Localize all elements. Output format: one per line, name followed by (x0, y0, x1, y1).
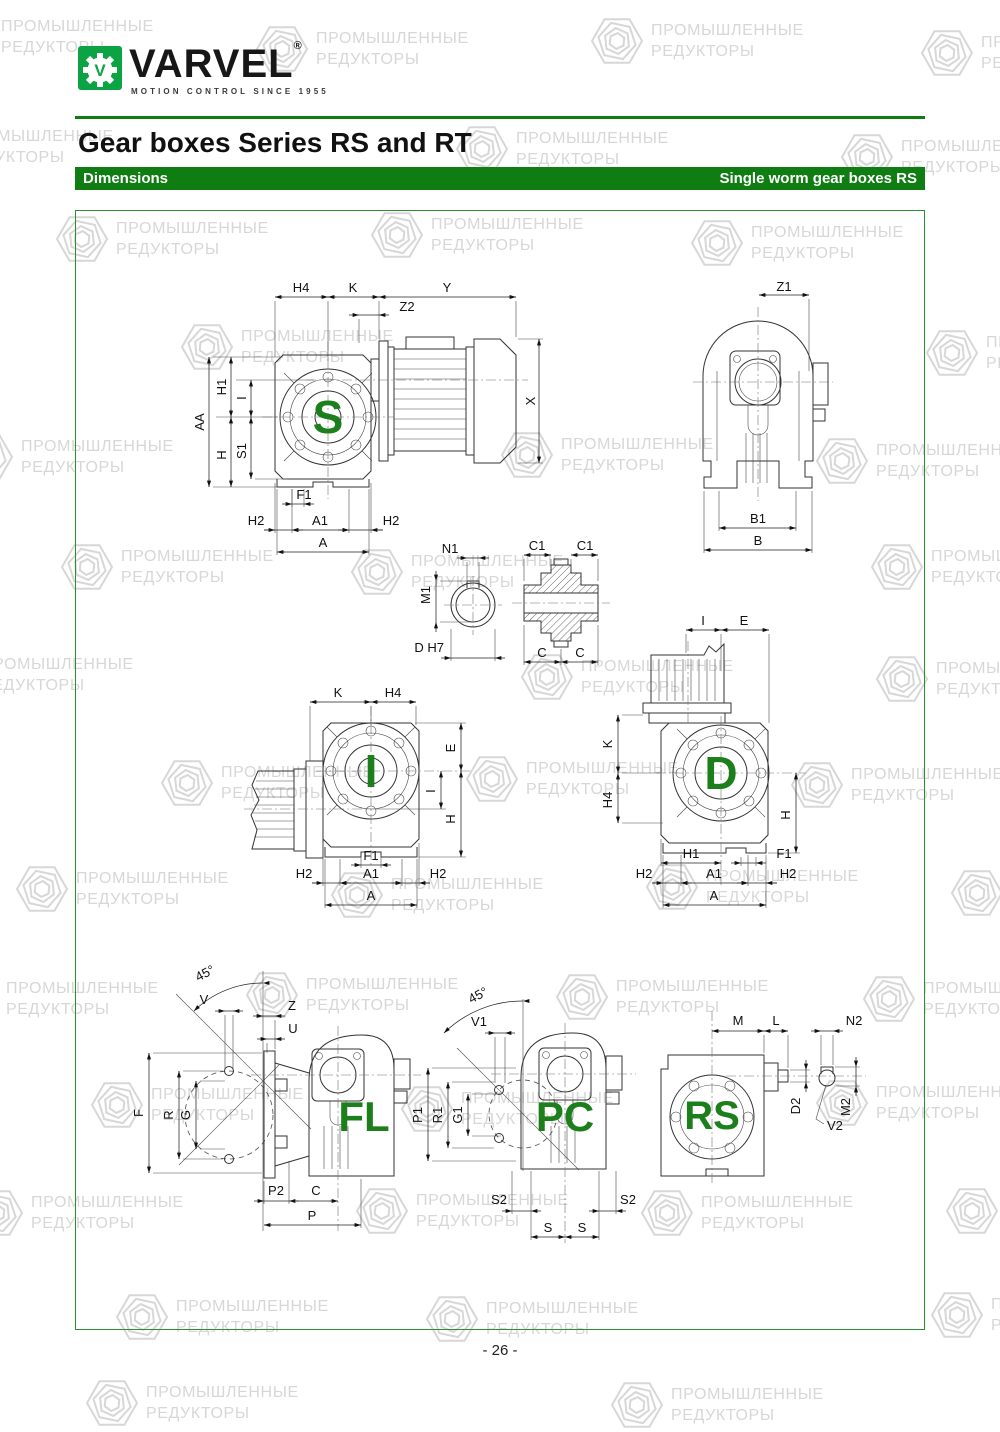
svg-text:I: I (423, 789, 438, 793)
svg-text:A1: A1 (363, 866, 379, 881)
watermark-line2: РЕДУКТОРЫ (986, 353, 1000, 374)
svg-text:C: C (537, 645, 546, 660)
svg-text:E: E (443, 743, 458, 752)
svg-text:I: I (234, 396, 249, 400)
watermark-line1: ПРОМЫШЛЕННЫЕ (936, 658, 1000, 679)
hexagon-swirl-icon (950, 866, 1000, 920)
svg-text:L: L (772, 1013, 779, 1028)
technical-drawings-svg: H4 K Y Z2 X AA H1 I H S1 F1 H2 A1 H2 (76, 211, 924, 1329)
svg-text:45°: 45° (466, 984, 490, 1006)
svg-text:H: H (778, 810, 793, 819)
hexagon-swirl-icon (920, 26, 974, 80)
svg-text:A1: A1 (706, 866, 722, 881)
svg-text:G: G (178, 1110, 193, 1120)
svg-text:C: C (311, 1183, 320, 1198)
watermark-line1: ПРОМЫШЛЕННЫЕ (516, 128, 669, 149)
version-letters-fl: FL (338, 1093, 389, 1140)
svg-text:S1: S1 (234, 443, 249, 459)
svg-text:H2: H2 (383, 513, 400, 528)
watermark-line1: ПРОМЫШЛЕННЫЕ (991, 1294, 1000, 1315)
watermark-line2: РЕДУКТОРЫ (991, 1315, 1000, 1336)
hexagon-swirl-icon (930, 1288, 984, 1342)
drawing-fl-version: 45° V Z U F R G P2 C (131, 962, 421, 1231)
svg-text:A: A (710, 888, 719, 903)
svg-text:D H7: D H7 (414, 640, 444, 655)
watermark: ПРОМЫШЛЕННЫЕРЕДУКТОРЫ (950, 866, 1000, 920)
watermark-line1: ПРОМЫШЛЕННЫЕ (146, 1382, 299, 1403)
watermark-line1: ПРОМЫШЛЕННЫЕ (986, 332, 1000, 353)
version-letter-d: D (704, 747, 737, 799)
hexagon-swirl-icon (945, 1184, 999, 1238)
svg-text:U: U (288, 1021, 297, 1036)
svg-text:V: V (200, 992, 209, 1007)
section-bar-left-label: Dimensions (83, 170, 168, 187)
watermark: ПРОМЫШЛЕННЫЕРЕДУКТОРЫ (945, 1184, 1000, 1238)
svg-text:K: K (600, 739, 615, 748)
svg-text:K: K (349, 280, 358, 295)
brand-name: VARVEL® (129, 40, 303, 87)
svg-text:H4: H4 (600, 792, 615, 809)
watermark-line1: ПРОМЫШЛЕННЫЕ (316, 28, 469, 49)
brand-tagline: MOTION CONTROL SINCE 1955 (131, 87, 329, 96)
svg-text:H2: H2 (430, 866, 447, 881)
svg-text:H1: H1 (683, 846, 700, 861)
svg-text:H1: H1 (214, 379, 229, 396)
svg-text:S: S (578, 1220, 587, 1235)
watermark: ПРОМЫШЛЕННЫЕРЕДУКТОРЫ (920, 26, 1000, 80)
hexagon-swirl-icon (15, 862, 69, 916)
version-letter-i: I (365, 745, 378, 797)
svg-text:H4: H4 (385, 685, 402, 700)
svg-text:H: H (214, 450, 229, 459)
drawings-frame: H4 K Y Z2 X AA H1 I H S1 F1 H2 A1 H2 (75, 210, 925, 1330)
svg-text:H: H (443, 814, 458, 823)
version-letters-rs: RS (684, 1094, 740, 1138)
svg-text:F: F (131, 1109, 146, 1117)
svg-text:A: A (367, 888, 376, 903)
svg-text:H2: H2 (636, 866, 653, 881)
section-bar: Dimensions Single worm gear boxes RS (75, 167, 925, 190)
watermark-line2: РЕДУКТОРЫ (671, 1405, 824, 1426)
svg-text:H4: H4 (293, 280, 310, 295)
svg-text:C1: C1 (577, 538, 594, 553)
watermark-line1: ПРОМЫШЛЕННЫЕ (931, 546, 1000, 567)
svg-text:B: B (754, 533, 763, 548)
page-title: Gear boxes Series RS and RT (78, 127, 472, 159)
svg-text:E: E (740, 613, 749, 628)
registered-mark: ® (294, 40, 303, 52)
varvel-logo: V (78, 46, 122, 90)
watermark-line1: ПРОМЫШЛЕННЫЕ (981, 32, 1000, 53)
green-rule (75, 116, 925, 119)
watermark-line2: РЕДУКТОРЫ (923, 999, 1000, 1020)
svg-text:Y: Y (443, 280, 452, 295)
svg-text:C: C (575, 645, 584, 660)
svg-text:F1: F1 (363, 848, 378, 863)
svg-text:Z1: Z1 (776, 279, 791, 294)
svg-text:F1: F1 (296, 487, 311, 502)
page-number: - 26 - (0, 1342, 1000, 1359)
drawing-shaft-detail: N1 M1 D H7 C1 C1 C C (414, 538, 610, 665)
watermark: ПРОМЫШЛЕННЫЕРЕДУКТОРЫ (590, 14, 804, 68)
watermark-line2: РЕДУКТОРЫ (316, 49, 469, 70)
svg-text:H2: H2 (248, 513, 265, 528)
hexagon-swirl-icon (85, 1376, 139, 1430)
drawing-pc-version: 45° V1 P1 R1 G1 S2 S2 S S PC (410, 984, 636, 1243)
svg-text:I: I (701, 613, 705, 628)
svg-text:45°: 45° (193, 962, 217, 984)
svg-text:M2: M2 (838, 1098, 853, 1116)
watermark-line2: РЕДУКТОРЫ (981, 53, 1000, 74)
watermark-line1: ПРОМЫШЛЕННЫЕ (923, 978, 1000, 999)
svg-text:X: X (523, 396, 538, 405)
svg-text:V1: V1 (471, 1014, 487, 1029)
svg-text:M1: M1 (418, 586, 433, 604)
watermark: ПРОМЫШЛЕННЫЕРЕДУКТОРЫ (925, 326, 1000, 380)
watermark-line1: ПРОМЫШЛЕННЫЕ (671, 1384, 824, 1405)
svg-text:D2: D2 (788, 1098, 803, 1115)
svg-text:AA: AA (192, 413, 207, 431)
svg-text:B1: B1 (750, 511, 766, 526)
watermark: ПРОМЫШЛЕННЫЕРЕДУКТОРЫ (930, 1288, 1000, 1342)
svg-text:V2: V2 (827, 1118, 843, 1133)
svg-text:F1: F1 (776, 846, 791, 861)
drawing-i-version: K H4 E I H F1 H2 A1 H2 A I (244, 685, 471, 908)
svg-text:R1: R1 (430, 1107, 445, 1124)
hexagon-swirl-icon (925, 326, 979, 380)
drawing-rs-version: M L N2 D2 M2 V2 RS (661, 1011, 866, 1186)
hexagon-swirl-icon (610, 1378, 664, 1432)
hexagon-swirl-icon (0, 1186, 24, 1240)
drawing-d-version: I E K H4 H H1 F1 H2 A1 H2 A D (600, 613, 806, 908)
version-letter-s: S (313, 391, 344, 443)
watermark-line1: ПРОМЫШЛЕННЫЕ (1, 16, 154, 37)
svg-text:P1: P1 (410, 1107, 425, 1123)
logo-letter: V (94, 61, 106, 80)
svg-text:P: P (308, 1208, 317, 1223)
hexagon-swirl-icon (590, 14, 644, 68)
svg-text:M: M (733, 1013, 744, 1028)
svg-text:P2: P2 (268, 1183, 284, 1198)
svg-text:Z2: Z2 (399, 299, 414, 314)
svg-text:S2: S2 (620, 1192, 636, 1207)
svg-text:G1: G1 (450, 1106, 465, 1123)
svg-text:A1: A1 (312, 513, 328, 528)
svg-text:S2: S2 (491, 1192, 507, 1207)
watermark-line1: ПРОМЫШЛЕННЫЕ (651, 20, 804, 41)
hexagon-swirl-icon (0, 430, 14, 484)
watermark: ПРОМЫШЛЕННЫЕРЕДУКТОРЫ (85, 1376, 299, 1430)
section-bar-right-label: Single worm gear boxes RS (719, 170, 917, 187)
svg-text:R: R (161, 1110, 176, 1119)
svg-text:K: K (334, 685, 343, 700)
drawing-rear-view: Z1 B1 B (693, 279, 833, 553)
watermark-line1: ПРОМЫШЛЕННЫЕ (901, 136, 1000, 157)
drawing-s-version: H4 K Y Z2 X AA H1 I H S1 F1 H2 A1 H2 (192, 280, 543, 555)
svg-text:H2: H2 (780, 866, 797, 881)
svg-text:N2: N2 (846, 1013, 863, 1028)
svg-text:Z: Z (288, 998, 296, 1013)
watermark-line2: РЕДУКТОРЫ (651, 41, 804, 62)
watermark-line2: РЕДУКТОРЫ (931, 567, 1000, 588)
svg-text:H2: H2 (296, 866, 313, 881)
svg-text:S: S (544, 1220, 553, 1235)
version-letters-pc: PC (536, 1093, 594, 1140)
varvel-gear-logo-icon: V (78, 46, 122, 90)
svg-text:A: A (319, 535, 328, 550)
svg-text:N1: N1 (442, 541, 459, 556)
watermark: ПРОМЫШЛЕННЫЕРЕДУКТОРЫ (610, 1378, 824, 1432)
svg-text:C1: C1 (529, 538, 546, 553)
watermark-line2: РЕДУКТОРЫ (936, 679, 1000, 700)
